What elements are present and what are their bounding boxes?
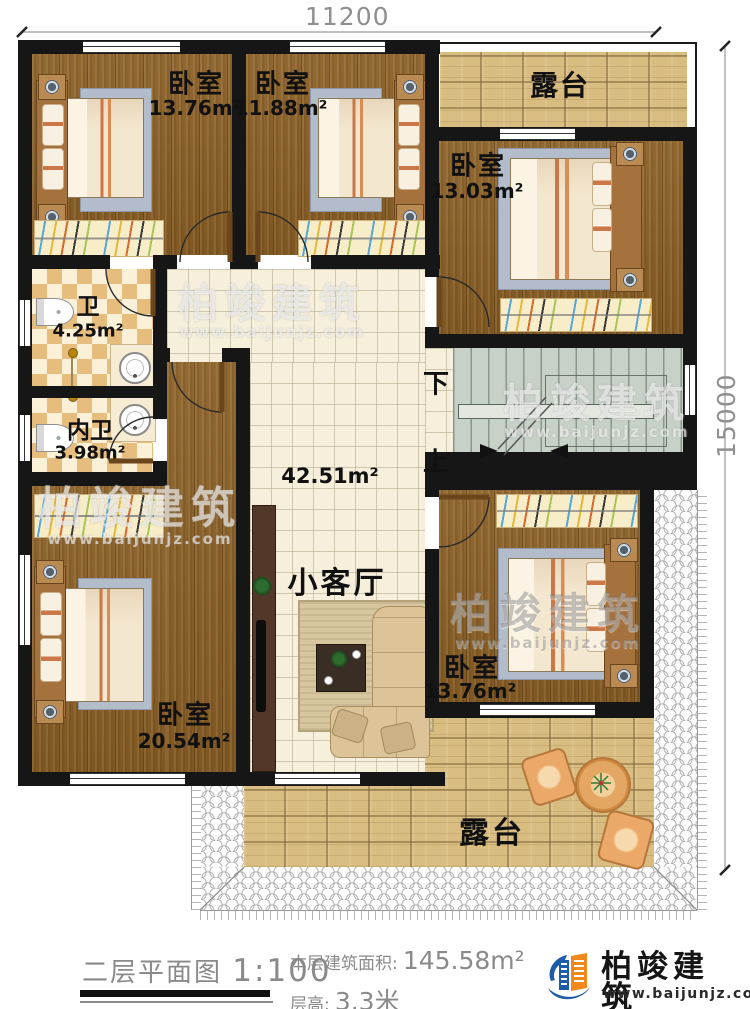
stair-symbols	[480, 397, 568, 458]
room-label-bedroom-top-middle: 卧室	[255, 64, 311, 101]
room-label-bathroom: 卫	[77, 287, 100, 321]
plan-linework	[0, 0, 750, 1009]
room-label-bedroom-right: 卧室	[450, 146, 506, 183]
floor-plan: 11200 15000 卧室 13.76m² 卧室 11.88m² 卧室 13.…	[0, 0, 750, 1009]
room-label-inner-bathroom: 内卫	[67, 411, 113, 445]
room-area-bedroom-bottom-left: 20.54m²	[138, 729, 231, 753]
room-area-living: 42.51m²	[281, 464, 379, 488]
room-area-bedroom-top-left: 13.76m²	[149, 96, 242, 120]
room-label-bedroom-bottom-left: 卧室	[157, 695, 213, 732]
patio-plant-icon	[591, 773, 611, 793]
room-label-terrace-top: 露台	[530, 64, 590, 104]
room-label-bedroom-top-left: 卧室	[168, 64, 224, 101]
roof-hips	[200, 867, 697, 910]
room-area-bathroom: 4.25m²	[52, 321, 123, 342]
room-label-living: 小客厅	[288, 558, 387, 602]
room-label-terrace-bottom: 露台	[459, 808, 525, 852]
stair-up-label: 上	[423, 442, 449, 479]
dimension-top: 11200	[305, 2, 390, 31]
room-area-bedroom-right: 13.03m²	[431, 179, 524, 203]
dimension-right: 15000	[712, 373, 741, 458]
stair-down-label: 下	[423, 364, 449, 401]
room-area-bedroom-top-middle: 11.88m²	[235, 96, 328, 120]
room-area-bedroom-bottom-right: 13.76m²	[424, 679, 517, 703]
room-area-inner-bathroom: 3.98m²	[54, 443, 125, 464]
